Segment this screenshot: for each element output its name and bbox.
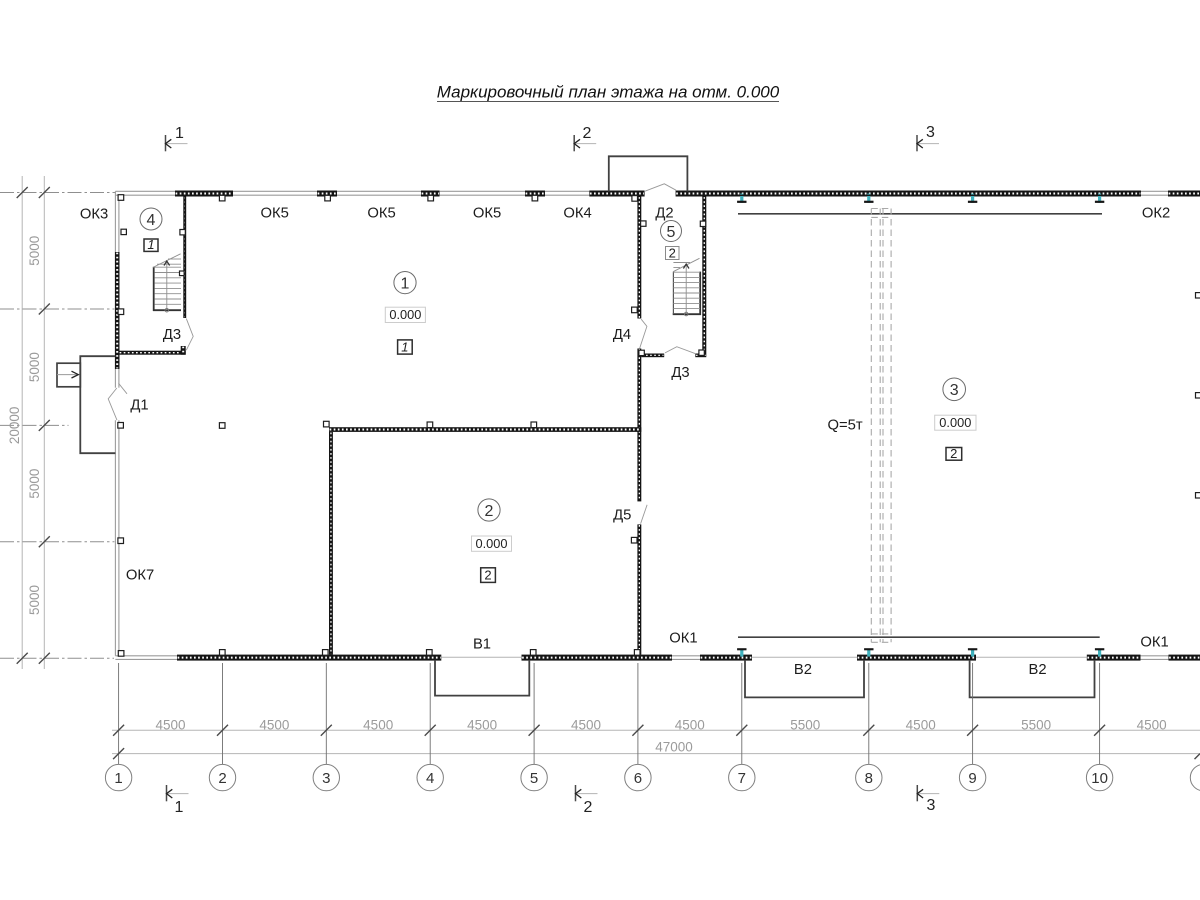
svg-text:ОК4: ОК4	[563, 206, 591, 222]
svg-text:7: 7	[738, 770, 746, 787]
svg-text:ОК2: ОК2	[1142, 206, 1170, 222]
svg-text:Q=5т: Q=5т	[828, 418, 863, 434]
svg-text:ОК3: ОК3	[80, 207, 108, 223]
svg-text:5000: 5000	[27, 469, 42, 499]
svg-text:2: 2	[484, 568, 491, 583]
svg-text:2: 2	[669, 245, 676, 260]
svg-text:3: 3	[322, 770, 330, 787]
svg-text:ОК5: ОК5	[261, 206, 289, 222]
svg-text:Д4: Д4	[613, 327, 631, 343]
svg-text:Д3: Д3	[671, 365, 689, 381]
svg-text:10: 10	[1091, 770, 1108, 787]
svg-text:Д2: Д2	[655, 206, 673, 222]
svg-text:4500: 4500	[259, 717, 289, 732]
svg-text:ОК7: ОК7	[126, 568, 154, 584]
svg-text:Д3: Д3	[163, 327, 181, 343]
svg-text:Д5: Д5	[613, 507, 631, 523]
svg-text:2: 2	[583, 125, 592, 142]
svg-text:5000: 5000	[27, 585, 42, 615]
svg-text:ОК1: ОК1	[1140, 634, 1168, 650]
svg-text:4: 4	[147, 212, 156, 229]
svg-text:ОК1: ОК1	[669, 630, 697, 646]
svg-text:5000: 5000	[27, 236, 42, 266]
svg-text:В2: В2	[1029, 662, 1047, 678]
svg-text:1: 1	[175, 125, 184, 142]
svg-text:1: 1	[401, 339, 408, 354]
svg-text:1: 1	[175, 799, 184, 816]
svg-text:0.000: 0.000	[389, 307, 421, 322]
svg-text:6: 6	[634, 770, 642, 787]
svg-text:Д1: Д1	[130, 398, 148, 414]
svg-text:5: 5	[667, 224, 676, 241]
svg-text:1: 1	[147, 237, 154, 252]
svg-text:2: 2	[218, 770, 226, 787]
svg-text:4500: 4500	[571, 717, 601, 732]
svg-text:47000: 47000	[655, 740, 693, 755]
svg-text:В2: В2	[794, 662, 812, 678]
svg-text:4: 4	[426, 770, 434, 787]
svg-text:3: 3	[927, 797, 936, 814]
svg-text:5500: 5500	[1021, 717, 1051, 732]
svg-text:4500: 4500	[363, 717, 393, 732]
svg-text:0.000: 0.000	[939, 415, 971, 430]
svg-text:1: 1	[114, 770, 122, 787]
svg-text:1: 1	[401, 276, 410, 293]
svg-text:8: 8	[865, 770, 873, 787]
svg-text:4500: 4500	[906, 717, 936, 732]
svg-text:2: 2	[584, 799, 593, 816]
svg-text:5: 5	[530, 770, 538, 787]
svg-text:9: 9	[968, 770, 976, 787]
svg-text:0.000: 0.000	[475, 536, 507, 551]
svg-text:20000: 20000	[7, 407, 22, 445]
svg-text:2: 2	[485, 503, 494, 520]
svg-text:В1: В1	[473, 637, 491, 653]
svg-text:5500: 5500	[790, 717, 820, 732]
svg-text:ОК5: ОК5	[367, 206, 395, 222]
svg-text:ОК5: ОК5	[473, 206, 501, 222]
svg-text:4500: 4500	[1137, 717, 1167, 732]
svg-text:Маркировочный план этажа на от: Маркировочный план этажа на отм. 0.000	[437, 83, 780, 102]
svg-text:2: 2	[950, 446, 957, 461]
svg-text:4500: 4500	[675, 717, 705, 732]
svg-text:4500: 4500	[467, 717, 497, 732]
svg-text:3: 3	[950, 382, 959, 399]
svg-text:5000: 5000	[27, 352, 42, 382]
svg-text:3: 3	[926, 124, 935, 141]
svg-text:4500: 4500	[155, 717, 185, 732]
